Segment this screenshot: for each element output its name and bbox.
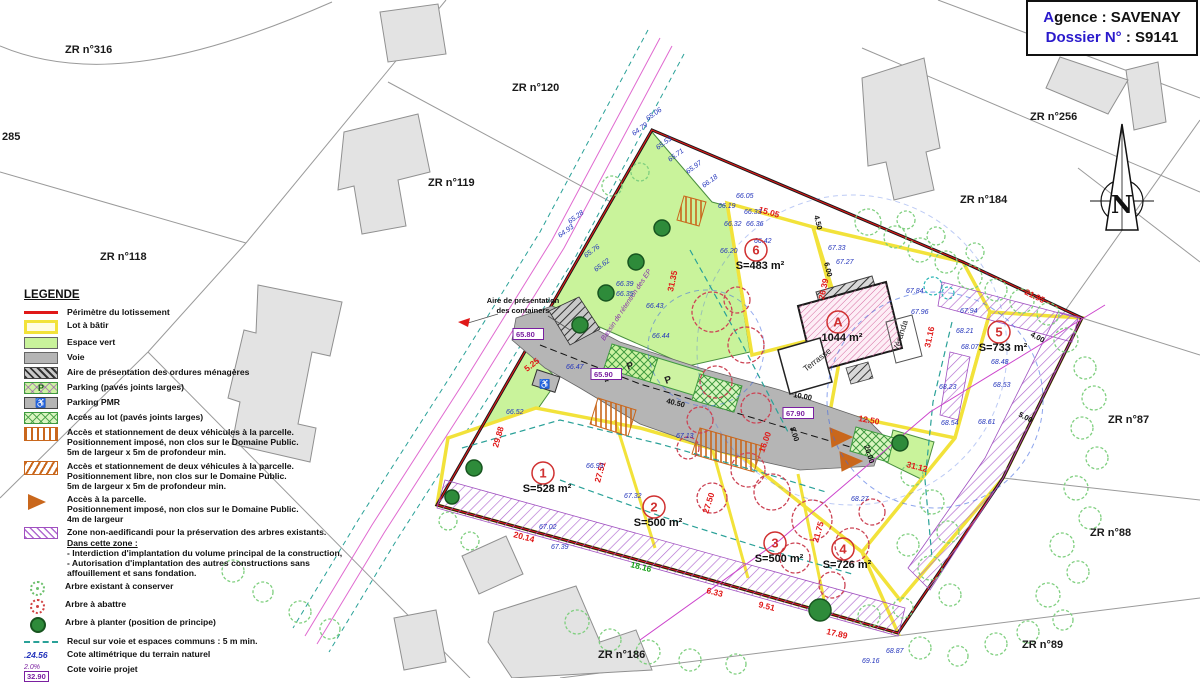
dimension-label: 17.89: [826, 626, 849, 641]
lot-number: 6: [752, 243, 759, 258]
legend-item-label: Arbre à abattre: [65, 599, 126, 609]
legend-item-label: Arbre existant à conserver: [65, 581, 173, 591]
legend-item-label: Accès au lot (pavés joints larges): [67, 412, 203, 422]
elevation-label: 66.19: [718, 203, 736, 210]
lot-number: 5: [995, 325, 1002, 340]
containers-label: des containers: [497, 306, 550, 315]
elevation-label: 67.94: [960, 308, 978, 315]
legend-item-label: Voie: [67, 352, 85, 362]
dimension-label: 21.95: [1023, 287, 1047, 305]
elevation-label: 67.39: [551, 544, 569, 551]
legend-item-label: Cote altimétrique du terrain naturel: [67, 649, 210, 659]
parcel-label: ZR n°119: [428, 177, 475, 189]
legend-item-label: Aire de présentation des ordures ménagèr…: [67, 367, 249, 377]
acces-libre-swatch: [24, 461, 58, 475]
legend-item-label: Espace vert: [67, 337, 115, 347]
acces-parcelle-swatch: [28, 494, 46, 510]
title-block: Agence : SAVENAY Dossier N° : S9141: [1026, 0, 1198, 56]
elevation-label: 68.87: [886, 648, 905, 655]
building: [1126, 62, 1166, 130]
north-arrow: N: [1090, 124, 1154, 230]
legend-item: Voie: [24, 352, 346, 364]
elevation-label: 67.84: [906, 288, 924, 295]
building: [862, 58, 940, 200]
legend-item: Accès et stationnement de deux véhicules…: [24, 461, 346, 491]
elevation-label: 66.44: [652, 333, 670, 340]
legend-item-label: Parking (pavés joints larges): [67, 382, 184, 392]
parcel-label: ZR n°120: [512, 82, 559, 94]
legend-item: Périmètre du lotissement: [24, 307, 346, 317]
elevation-label: 68.61: [978, 419, 996, 426]
road-level-label: 65.90: [594, 370, 613, 379]
legend-item: ♿Parking PMR: [24, 397, 346, 409]
voie-swatch: [24, 352, 58, 364]
legend-item: Arbre existant à conserver: [24, 581, 346, 596]
acces-lot-swatch: [24, 412, 58, 424]
lot-number: 4: [839, 542, 847, 557]
elevation-label: 66.32: [724, 221, 742, 228]
lot-number: A: [833, 315, 843, 330]
legend-item: Accès au lot (pavés joints larges): [24, 412, 346, 424]
building: [394, 610, 446, 670]
parcel-label: ZR n°87: [1108, 414, 1149, 426]
legend-item-label: Recul sur voie et espaces communs : 5 m …: [67, 636, 258, 646]
elevation-label: 65.06: [645, 107, 663, 123]
building: [380, 4, 446, 62]
elevation-label: 66.93: [586, 463, 604, 470]
legend-item-label: Cote voirie projet: [67, 664, 138, 674]
legend-item-label: Périmètre du lotissement: [67, 307, 170, 317]
elevation-label: 68.54: [941, 420, 959, 427]
building: [462, 536, 523, 594]
pmr-icon: ♿: [539, 378, 550, 389]
legend-item: Recul sur voie et espaces communs : 5 m …: [24, 636, 346, 646]
road-level-label: 67.90: [786, 409, 805, 418]
arbre-planter-swatch: [30, 617, 46, 633]
agency-line: Agence : SAVENAY: [1043, 8, 1181, 28]
elevation-label: 69.16: [862, 658, 880, 665]
elevation-label: 66.18: [701, 174, 719, 190]
agency-value: gence : SAVENAY: [1054, 9, 1181, 26]
elevation-label: 66.35: [616, 291, 634, 298]
road-level-label: 65.80: [516, 330, 535, 339]
agency-label-accent: A: [1043, 9, 1054, 26]
dossier-label: Dossier N°: [1046, 29, 1122, 46]
arbre-conserver-swatch: [30, 581, 45, 596]
legend-item-label: Zone non-aedificandi pour la préservatio…: [67, 527, 342, 578]
legend-item: Arbre à abattre: [24, 599, 346, 614]
elevation-label: 68.27: [851, 496, 870, 503]
legend-item: Aire de présentation des ordures ménagèr…: [24, 367, 346, 379]
cote-voirie-swatch: 2.0%32.90: [24, 664, 58, 682]
elevation-label: 68.48: [991, 359, 1009, 366]
lot-number: 1: [539, 466, 546, 481]
elevation-label: 67.32: [624, 493, 642, 500]
elevation-label: 67.27: [836, 259, 855, 266]
legend-item-label: Parking PMR: [67, 397, 120, 407]
parcel-label: ZR n°316: [65, 44, 112, 56]
lot-area: S=726 m²: [823, 559, 872, 571]
lot-area: S=483 m²: [736, 260, 785, 272]
ordures-swatch: [24, 367, 58, 379]
north-label: N: [1111, 190, 1133, 219]
lot-number: 2: [650, 500, 657, 515]
perimeter-swatch: [24, 311, 58, 314]
building: [338, 114, 430, 234]
elevation-label: 66.36: [746, 221, 764, 228]
legend-item: Espace vert: [24, 337, 346, 349]
elevation-label: 68.07: [961, 344, 980, 351]
parcel-label: ZR n°89: [1022, 639, 1063, 651]
elevation-label: 66.43: [646, 303, 664, 310]
road-level-box: 65.80: [513, 329, 544, 340]
elevation-label: 66.05: [736, 193, 754, 200]
parcel-label: ZR n°88: [1090, 527, 1131, 539]
lot-number: 3: [771, 536, 778, 551]
legend-items: Périmètre du lotissementLot à bâtirEspac…: [24, 307, 346, 682]
zone-non-aedificandi-swatch: [24, 527, 58, 539]
parking-pmr-swatch: ♿: [24, 397, 58, 409]
elevation-label: 67.13: [676, 433, 694, 440]
elevation-label: 68.21: [956, 328, 974, 335]
parcel-label: ZR n°186: [598, 649, 645, 661]
lot-area: 1044 m²: [822, 332, 863, 344]
parcel-label: ZR n°184: [960, 194, 1008, 206]
lot-area: S=500 m²: [755, 553, 804, 565]
legend-item: PParking (pavés joints larges): [24, 382, 346, 394]
legend: LEGENDE Périmètre du lotissementLot à bâ…: [24, 289, 346, 685]
legend-item-label: Arbre à planter (position de principe): [65, 617, 216, 627]
dossier-value: : S9141: [1122, 29, 1179, 46]
legend-item: Accès et stationnement de deux véhicules…: [24, 427, 346, 457]
legend-title: LEGENDE: [24, 289, 346, 301]
parking-swatch: P: [24, 382, 58, 394]
elevation-label: 65.97: [685, 159, 704, 176]
elevation-label: 66.20: [720, 248, 738, 255]
lot-area: S=528 m²: [523, 483, 572, 495]
road-level-box: 65.90: [591, 369, 622, 380]
legend-item-label: Lot à bâtir: [67, 320, 109, 330]
parcel-label: ZR n°256: [1030, 111, 1077, 123]
elevation-label: 66.33: [744, 209, 762, 216]
containers-label: Aire de présentation: [487, 296, 560, 305]
elevation-label: 68.23: [939, 384, 957, 391]
espace-vert-swatch: [24, 337, 58, 349]
dossier-line: Dossier N° : S9141: [1046, 28, 1179, 48]
lot-swatch: [24, 320, 58, 334]
arbre-abattre-swatch: [30, 599, 45, 614]
building: [1046, 57, 1128, 114]
recul-swatch: [24, 641, 58, 643]
elevation-label: 67.33: [828, 245, 846, 252]
elevation-label: 68.53: [993, 382, 1011, 389]
elevation-label: 67.02: [539, 524, 557, 531]
cote-altimetrique-swatch: .24.56: [24, 649, 58, 661]
parcel-label: ZR n°118: [100, 251, 147, 263]
legend-item: 2.0%32.90Cote voirie projet: [24, 664, 346, 682]
elevation-label: 65.28: [567, 210, 585, 226]
legend-item: Accès à la parcelle.Positionnement impos…: [24, 494, 346, 524]
acces-impose-swatch: [24, 427, 58, 441]
road-level-box: 67.90: [783, 408, 814, 419]
leader-arrow: [458, 318, 470, 327]
elevation-label: 66.39: [616, 281, 634, 288]
lot-area: S=733 m²: [979, 342, 1028, 354]
elevation-label: 66.47: [566, 364, 585, 371]
legend-item-label: Accès et stationnement de deux véhicules…: [67, 427, 299, 457]
legend-item: Zone non-aedificandi pour la préservatio…: [24, 527, 346, 578]
legend-item: Arbre à planter (position de principe): [24, 617, 346, 633]
legend-item: .24.56Cote altimétrique du terrain natur…: [24, 649, 346, 661]
elevation-label: 66.52: [506, 409, 524, 416]
lot-area: S=500 m²: [634, 517, 683, 529]
legend-item-label: Accès et stationnement de deux véhicules…: [67, 461, 294, 491]
road-curve: [0, 2, 332, 64]
legend-item: Lot à bâtir: [24, 320, 346, 334]
legend-item-label: Accès à la parcelle.Positionnement impos…: [67, 494, 299, 524]
parcel-label: 285: [2, 131, 20, 143]
elevation-label: 67.96: [911, 309, 929, 316]
